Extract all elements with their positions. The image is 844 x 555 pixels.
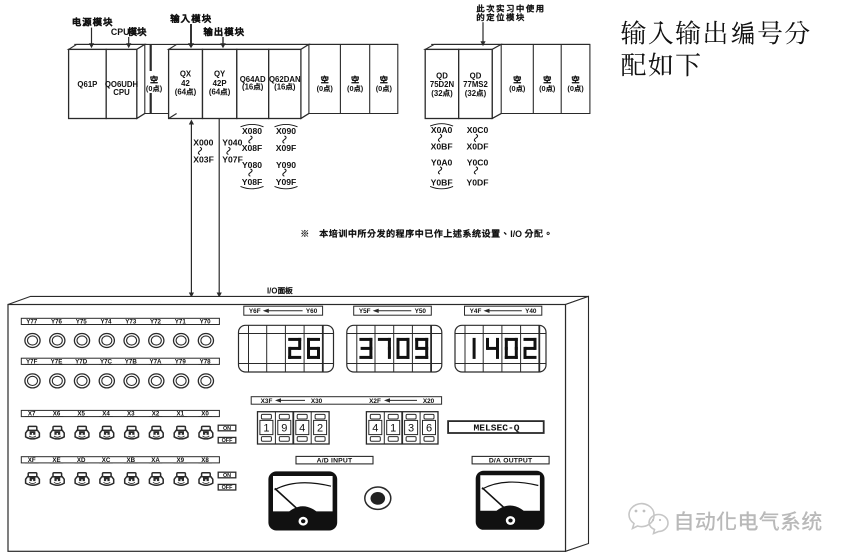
svg-text:X090: X090 xyxy=(276,126,296,136)
svg-text:(0: (0 xyxy=(567,84,574,93)
svg-text:Y08F: Y08F xyxy=(242,177,263,187)
svg-text:X080: X080 xyxy=(242,126,262,136)
svg-text:ON: ON xyxy=(223,473,231,479)
svg-text:X0A0: X0A0 xyxy=(431,125,453,135)
svg-text:OFF: OFF xyxy=(222,485,233,491)
svg-text:CPU: CPU xyxy=(111,27,130,37)
svg-text:Y4F: Y4F xyxy=(470,308,482,315)
svg-text:): ) xyxy=(261,82,264,91)
svg-text:6: 6 xyxy=(426,423,432,435)
svg-text:I/O: I/O xyxy=(267,286,277,295)
svg-text:1: 1 xyxy=(390,423,396,435)
svg-text:X20: X20 xyxy=(423,398,435,405)
svg-text:Y0A0: Y0A0 xyxy=(431,157,453,167)
svg-text:3: 3 xyxy=(408,423,414,435)
svg-text:D/A OUTPUT: D/A OUTPUT xyxy=(489,458,533,465)
svg-text:X30: X30 xyxy=(311,398,323,405)
svg-text:Y0DF: Y0DF xyxy=(467,178,489,188)
svg-text:Y09F: Y09F xyxy=(276,177,297,187)
svg-text:): ) xyxy=(228,88,231,97)
svg-text:(32: (32 xyxy=(465,89,477,98)
svg-text:CPU: CPU xyxy=(113,88,130,97)
svg-text:Y40: Y40 xyxy=(525,308,537,315)
svg-text:OFF: OFF xyxy=(222,438,233,444)
svg-text:4: 4 xyxy=(299,423,305,435)
svg-text:Y5F: Y5F xyxy=(359,308,371,315)
svg-text:(16: (16 xyxy=(242,82,254,91)
svg-text:X000: X000 xyxy=(193,138,213,148)
svg-text:9: 9 xyxy=(281,423,287,435)
svg-text:(0: (0 xyxy=(539,84,546,93)
svg-text:QX: QX xyxy=(180,69,192,78)
svg-text:(0: (0 xyxy=(317,84,324,93)
svg-text:(64: (64 xyxy=(175,88,187,97)
svg-text:X08F: X08F xyxy=(242,143,263,153)
svg-text:MELSEC-Q: MELSEC-Q xyxy=(473,422,519,433)
svg-text:77MS2: 77MS2 xyxy=(463,80,488,89)
svg-text:(0: (0 xyxy=(347,84,354,93)
svg-text:X09F: X09F xyxy=(276,143,297,153)
svg-text:42: 42 xyxy=(181,79,190,88)
svg-text:Y0BF: Y0BF xyxy=(431,178,453,188)
svg-text:): ) xyxy=(450,89,453,98)
svg-text:ON: ON xyxy=(223,426,231,432)
svg-text:4: 4 xyxy=(372,423,378,435)
svg-text:QY: QY xyxy=(214,69,226,78)
svg-text:Y0C0: Y0C0 xyxy=(467,157,489,167)
svg-text:Y040: Y040 xyxy=(222,138,242,148)
svg-text:1: 1 xyxy=(263,423,269,435)
svg-text:(0: (0 xyxy=(376,84,383,93)
svg-text:42P: 42P xyxy=(213,79,227,88)
svg-text:Q61P: Q61P xyxy=(77,80,97,89)
svg-text:Y50: Y50 xyxy=(415,308,427,315)
svg-text:): ) xyxy=(194,88,197,97)
svg-text:75D2N: 75D2N xyxy=(430,80,455,89)
svg-text:A/D INPUT: A/D INPUT xyxy=(317,458,353,465)
svg-text:Y60: Y60 xyxy=(306,308,318,315)
svg-text:(32: (32 xyxy=(431,89,443,98)
svg-text:X03F: X03F xyxy=(193,155,214,165)
svg-text:Y080: Y080 xyxy=(242,160,262,170)
svg-text:X0DF: X0DF xyxy=(467,141,489,151)
svg-text:(0: (0 xyxy=(509,84,516,93)
svg-text:(64: (64 xyxy=(209,88,221,97)
svg-text:X0BF: X0BF xyxy=(431,141,453,151)
svg-text:X3F: X3F xyxy=(261,398,273,405)
svg-text:X2F: X2F xyxy=(369,398,381,405)
svg-text:(0: (0 xyxy=(146,84,153,93)
svg-text:Y6F: Y6F xyxy=(249,308,261,315)
svg-text:): ) xyxy=(293,82,296,91)
svg-text:Y07F: Y07F xyxy=(222,155,243,165)
svg-text:I/O: I/O xyxy=(510,229,522,239)
svg-text:(16: (16 xyxy=(274,82,286,91)
svg-text:): ) xyxy=(484,89,487,98)
svg-text:X0C0: X0C0 xyxy=(467,125,489,135)
svg-text:2: 2 xyxy=(317,423,323,435)
svg-text:Y090: Y090 xyxy=(276,160,296,170)
